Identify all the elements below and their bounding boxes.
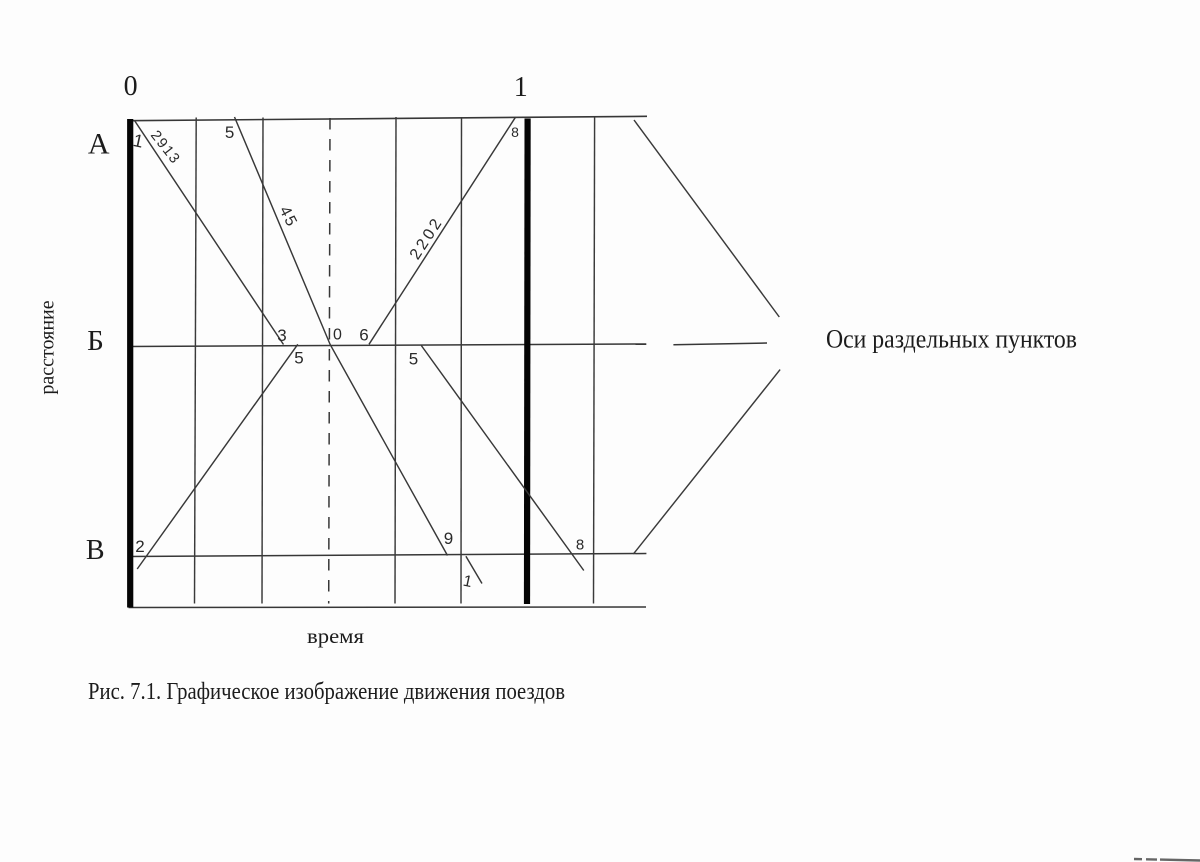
- svg-text:2: 2: [135, 537, 144, 556]
- svg-text:5: 5: [225, 123, 234, 142]
- svg-text:1: 1: [131, 130, 145, 152]
- svg-text:8: 8: [576, 537, 584, 554]
- svg-text:0: 0: [333, 327, 342, 344]
- svg-text:Б: Б: [87, 325, 104, 357]
- svg-text:1: 1: [461, 573, 473, 591]
- svg-text:1: 1: [514, 72, 528, 103]
- svg-text:5: 5: [409, 350, 418, 369]
- svg-text:В: В: [86, 535, 105, 566]
- svg-text:6: 6: [359, 326, 368, 345]
- svg-text:0: 0: [124, 71, 138, 102]
- svg-text:А: А: [88, 128, 110, 161]
- svg-text:Оси раздельных пунктов: Оси раздельных пунктов: [826, 325, 1077, 354]
- svg-text:45: 45: [276, 204, 301, 231]
- svg-text:время: время: [307, 624, 364, 648]
- svg-text:5: 5: [294, 349, 303, 368]
- svg-text:Рис. 7.1. Графическое изображе: Рис. 7.1. Графическое изображение движен…: [88, 679, 565, 705]
- svg-text:9: 9: [444, 529, 453, 548]
- svg-text:3: 3: [277, 326, 286, 345]
- svg-text:8: 8: [511, 124, 519, 140]
- svg-text:расстояние: расстояние: [37, 300, 59, 394]
